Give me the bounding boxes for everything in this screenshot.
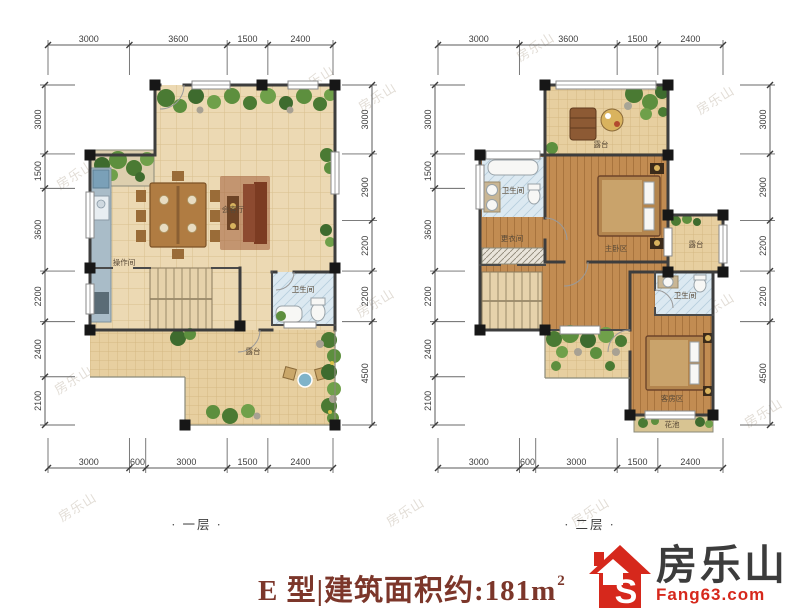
dimension-label: 3000 <box>566 457 586 467</box>
dimension-label: 1500 <box>627 34 647 44</box>
dimension-label: 2400 <box>290 457 310 467</box>
floor2-guest-bed <box>646 333 713 396</box>
room-label: 露台 <box>594 139 609 149</box>
dimension-label: 2400 <box>423 339 433 359</box>
dimension-label: 3000 <box>423 109 433 129</box>
dimension-label: 3600 <box>558 34 578 44</box>
dimension-label: 3600 <box>168 34 188 44</box>
room-label: 卫生间 <box>292 284 315 294</box>
room-label: 花池 <box>665 419 680 429</box>
dimension-label: 2900 <box>758 177 768 197</box>
room-label: 卫生间 <box>674 290 697 300</box>
dimension-label: 2400 <box>290 34 310 44</box>
dimension-label: 1500 <box>627 457 647 467</box>
dimension-label: 3000 <box>469 34 489 44</box>
dimension-label: 600 <box>130 457 145 467</box>
floor2-master-bed <box>598 163 664 249</box>
logo-name: 房乐山 <box>656 544 788 586</box>
room-label: 操作间 <box>113 257 136 267</box>
dimension-label: 1500 <box>237 34 257 44</box>
room-label: 露台 <box>246 346 261 356</box>
dimension-label: 2200 <box>758 236 768 256</box>
plan-title: E 型|建筑面积约:181m2 <box>258 567 565 609</box>
watermark-text: 房乐山 <box>56 490 100 525</box>
dimension-label: 4500 <box>360 363 370 383</box>
dimension-label: 3600 <box>33 220 43 240</box>
dimension-label: 2400 <box>33 339 43 359</box>
logo-house-icon: S <box>588 544 652 610</box>
logo-icon-letter: S <box>615 573 638 610</box>
dimension-label: 2100 <box>423 391 433 411</box>
dimension-label: 2200 <box>423 286 433 306</box>
room-label: 卫生间 <box>502 185 525 195</box>
dimension-label: 3000 <box>758 109 768 129</box>
dimension-label: 2400 <box>680 34 700 44</box>
watermark-text: 房乐山 <box>52 363 96 398</box>
dimension-label: 1500 <box>237 457 257 467</box>
logo-domain: Fang63.com <box>656 586 788 604</box>
dimension-label: 3000 <box>469 457 489 467</box>
dimension-label: 3000 <box>79 457 99 467</box>
plan-title-text: E 型|建筑面积约:181m <box>258 575 556 607</box>
floor2-wardrobe <box>482 248 545 264</box>
watermark-text: 房乐山 <box>514 30 558 65</box>
dimension-label: 600 <box>520 457 535 467</box>
dimension-label: 3600 <box>423 220 433 240</box>
room-label: 主卧区 <box>605 243 628 253</box>
floor1-plan <box>85 80 342 431</box>
room-label: 露台 <box>689 239 704 249</box>
dimension-label: 2200 <box>758 286 768 306</box>
dimension-label: 3000 <box>33 109 43 129</box>
floorplan-canvas: 房乐山房乐山房乐山房乐山房乐山房乐山房乐山房乐山房乐山房乐山房乐山房乐山房乐山房… <box>0 0 800 545</box>
dimension-label: 3000 <box>360 109 370 129</box>
floor2-stairs <box>482 272 542 330</box>
floor2-caption: · 二层 · <box>545 514 635 533</box>
watermark-text: 房乐山 <box>384 495 428 530</box>
floor2-plan <box>475 80 729 433</box>
logo: S 房乐山 Fang63.com <box>588 544 788 610</box>
watermark-text: 房乐山 <box>694 83 738 118</box>
room-label: 客房区 <box>661 393 684 403</box>
dimension-label: 2200 <box>33 286 43 306</box>
dimension-label: 2200 <box>360 236 370 256</box>
dimension-label: 2400 <box>680 457 700 467</box>
room-label: 会客厅 <box>222 204 245 214</box>
dimension-label: 3000 <box>176 457 196 467</box>
dimension-label: 3000 <box>79 34 99 44</box>
dimension-label: 1500 <box>33 161 43 181</box>
dimension-label: 4500 <box>758 363 768 383</box>
dimension-label: 2200 <box>360 286 370 306</box>
room-label: 更衣间 <box>501 233 524 243</box>
plan-title-sup: 2 <box>557 573 566 589</box>
dimension-label: 2900 <box>360 177 370 197</box>
floorplan-page: 房乐山房乐山房乐山房乐山房乐山房乐山房乐山房乐山房乐山房乐山房乐山房乐山房乐山房… <box>0 0 800 615</box>
dimension-label: 1500 <box>423 161 433 181</box>
floor1-stairs <box>150 268 212 330</box>
floor1-caption: · 一层 · <box>152 514 242 533</box>
dimension-label: 2100 <box>33 391 43 411</box>
